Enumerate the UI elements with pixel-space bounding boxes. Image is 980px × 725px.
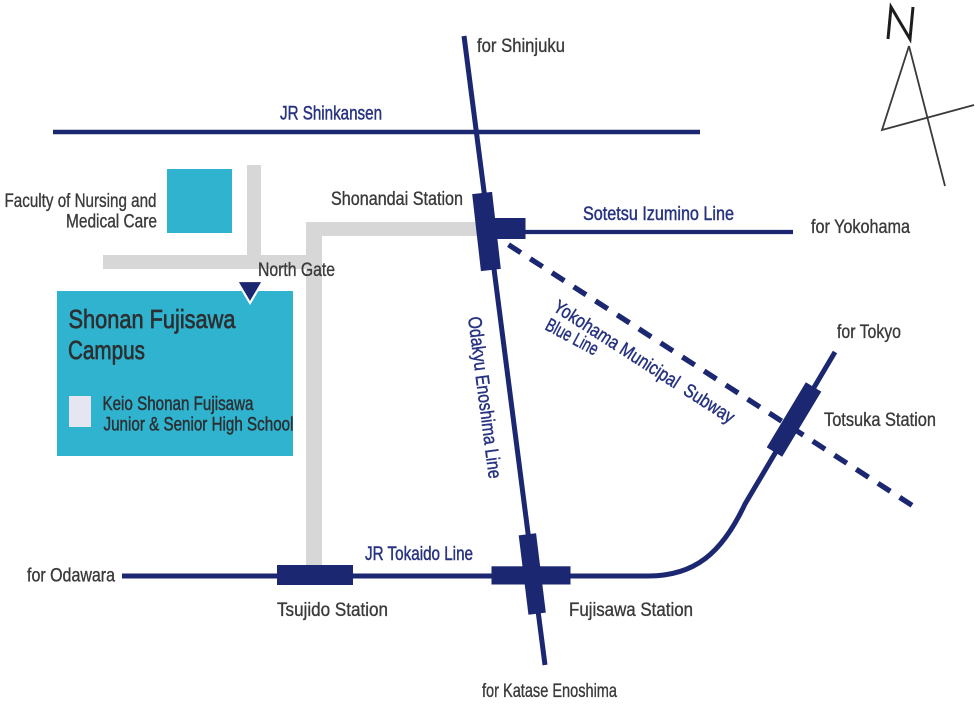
svg-text:Shonandai Station: Shonandai Station (331, 189, 463, 210)
svg-text:for Tokyo: for Tokyo (837, 322, 901, 343)
svg-text:Totsuka Station: Totsuka Station (824, 410, 936, 431)
svg-text:Medical Care: Medical Care (66, 212, 157, 233)
svg-text:Keio Shonan Fujisawa: Keio Shonan Fujisawa (103, 394, 254, 415)
svg-text:Faculty of Nursing and: Faculty of Nursing and (5, 191, 157, 212)
svg-text:for Katase Enoshima: for Katase Enoshima (482, 681, 617, 702)
svg-text:Shonan Fujisawa: Shonan Fujisawa (69, 304, 236, 334)
svg-text:for Odawara: for Odawara (27, 566, 115, 587)
svg-text:for Yokohama: for Yokohama (811, 217, 910, 238)
svg-text:Fujisawa Station: Fujisawa Station (569, 600, 693, 621)
svg-text:Campus: Campus (68, 335, 145, 365)
svg-text:Junior & Senior High School: Junior & Senior High School (104, 415, 294, 436)
svg-text:North Gate: North Gate (258, 260, 335, 281)
svg-text:Sotetsu Izumino Line: Sotetsu Izumino Line (583, 204, 734, 225)
svg-text:JR Shinkansen: JR Shinkansen (280, 104, 382, 125)
svg-text:Tsujido Station: Tsujido Station (277, 600, 388, 621)
svg-text:JR Tokaido Line: JR Tokaido Line (365, 544, 473, 565)
svg-text:for Shinjuku: for Shinjuku (477, 36, 565, 57)
